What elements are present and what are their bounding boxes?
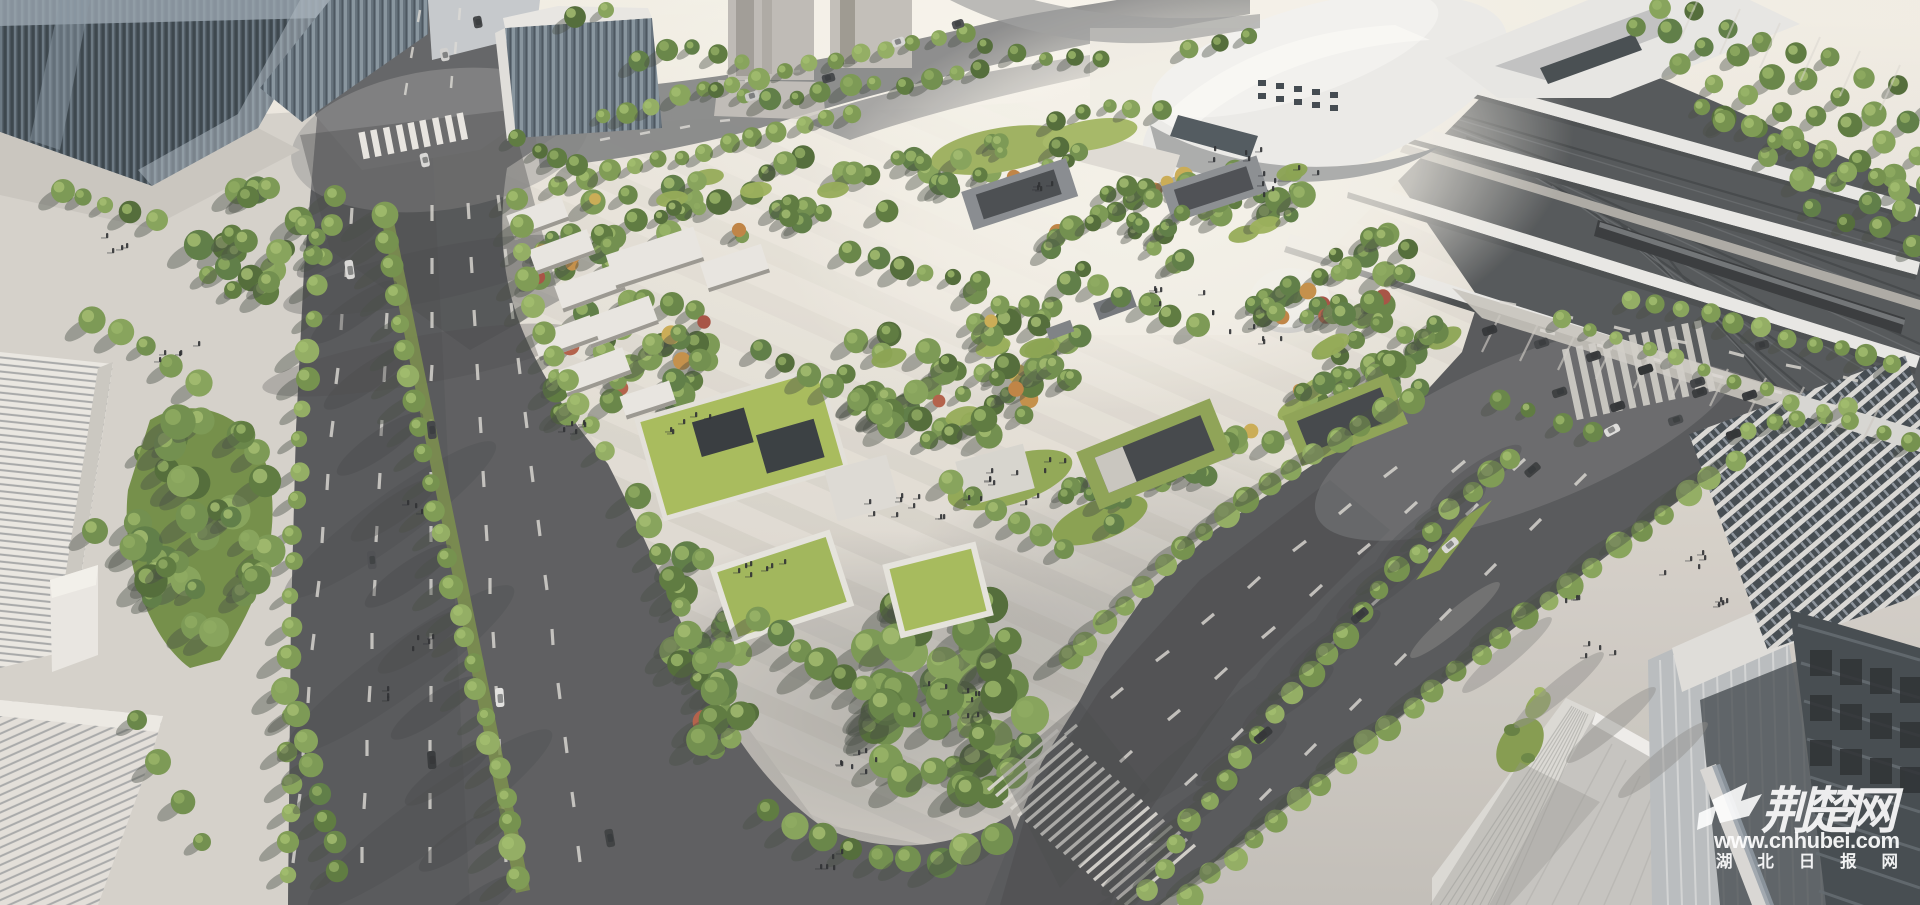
svg-text:www.cnhubei.com: www.cnhubei.com <box>1713 828 1900 853</box>
